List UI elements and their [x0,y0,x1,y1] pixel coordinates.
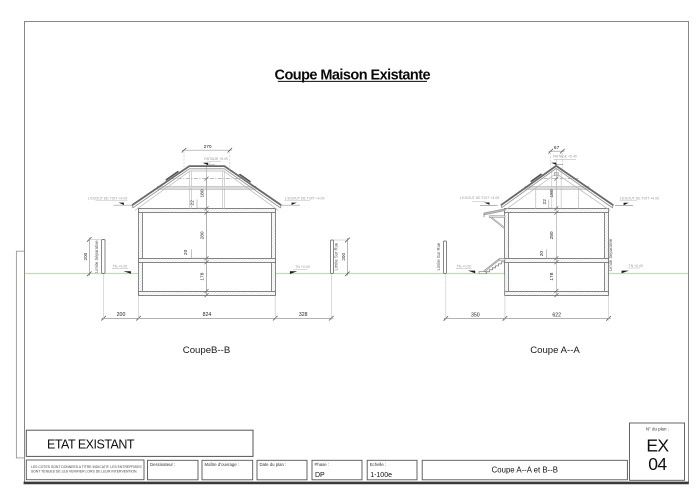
svg-text:824: 824 [203,312,212,318]
svg-text:EX: EX [646,436,669,456]
svg-text:SONT TENUES DE LES VERIFIER LO: SONT TENUES DE LES VERIFIER LORS DE LEUR… [31,469,138,473]
svg-text:N° du plan :: N° du plan : [646,427,669,432]
svg-text:20: 20 [183,249,189,255]
svg-text:22: 22 [189,200,195,206]
svg-text:280: 280 [549,231,555,239]
svg-text:67: 67 [554,145,560,151]
svg-text:Limite Sur Rue: Limite Sur Rue [436,242,441,270]
svg-text:LES COTES SONT DONNEES A TITRE: LES COTES SONT DONNEES A TITRE INDICATIF… [31,465,142,469]
svg-text:04: 04 [648,454,667,474]
svg-text:Dessinateur :: Dessinateur : [150,462,175,467]
svg-text:FAITAGE +5.49: FAITAGE +5.49 [204,157,228,161]
svg-text:Phase :: Phase : [315,462,330,467]
svg-text:Date du plan :: Date du plan : [260,462,287,467]
svg-text:Coupe A--A: Coupe A--A [530,345,580,356]
svg-text:Limite Sur Rue: Limite Sur Rue [334,242,339,270]
svg-text:Maître d'ouvrage :: Maître d'ouvrage : [205,462,240,467]
svg-text:280: 280 [199,231,205,239]
svg-text:TN +0.00: TN +0.00 [457,264,472,268]
svg-text:Limite Séparative: Limite Séparative [608,238,613,271]
svg-text:Limite Séparative: Limite Séparative [94,240,99,273]
svg-text:TN +0.00: TN +0.00 [295,265,310,269]
svg-text:FAITAGE +5.49: FAITAGE +5.49 [553,155,577,159]
svg-text:200: 200 [83,252,88,260]
svg-text:DP: DP [315,472,325,479]
svg-text:Echelle :: Echelle : [370,462,386,467]
svg-text:L'EGOUT DE TOIT +4.09: L'EGOUT DE TOIT +4.09 [88,196,127,200]
svg-text:TN +0.00: TN +0.00 [629,264,644,268]
svg-text:622: 622 [552,312,561,318]
svg-text:1-100e: 1-100e [370,472,392,479]
svg-text:CoupeB--B: CoupeB--B [183,345,230,356]
svg-text:270: 270 [204,144,212,150]
svg-text:328: 328 [299,312,308,318]
svg-text:180: 180 [199,189,205,197]
svg-text:L'EGOUT DE TOIT +4.09: L'EGOUT DE TOIT +4.09 [285,196,324,200]
svg-text:22: 22 [542,199,548,205]
svg-text:350: 350 [471,312,480,318]
svg-text:Coupe A--A et B--B: Coupe A--A et B--B [492,466,558,475]
svg-text:L'EGOUT DE TOIT +4.09: L'EGOUT DE TOIT +4.09 [620,196,659,200]
svg-text:200: 200 [341,253,346,261]
svg-text:L'EGOUT DE TOIT +4.09: L'EGOUT DE TOIT +4.09 [460,196,499,200]
svg-text:178: 178 [549,272,555,280]
svg-text:200: 200 [117,312,126,318]
svg-text:20: 20 [539,251,545,257]
svg-text:ETAT EXISTANT: ETAT EXISTANT [47,437,135,451]
svg-text:TN +0.00: TN +0.00 [113,264,128,268]
svg-text:178: 178 [199,272,205,280]
svg-text:180: 180 [549,189,555,197]
